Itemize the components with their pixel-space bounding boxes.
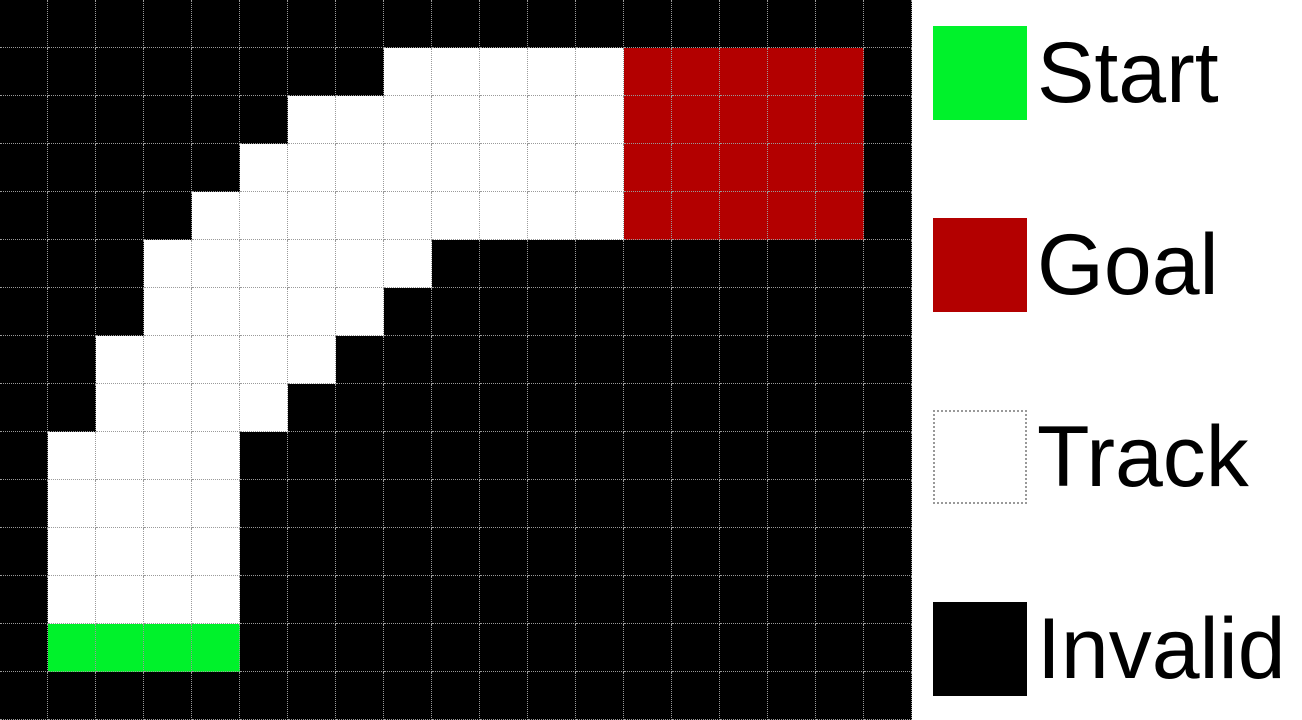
grid-cell-track <box>48 576 96 624</box>
grid-cell-goal <box>816 192 864 240</box>
grid-cell-invalid <box>336 336 384 384</box>
grid-cell-invalid <box>576 480 624 528</box>
grid-cell-invalid <box>768 336 816 384</box>
grid-cell-invalid <box>336 672 384 720</box>
grid-cell-track <box>192 576 240 624</box>
grid-cell-track <box>288 288 336 336</box>
legend-label-invalid: Invalid <box>1037 602 1286 696</box>
grid-cell-invalid <box>576 288 624 336</box>
grid-cell-invalid <box>576 528 624 576</box>
grid-cell-invalid <box>720 528 768 576</box>
grid-cell-invalid <box>336 432 384 480</box>
grid-cell-start <box>144 624 192 672</box>
grid-cell-invalid <box>864 672 912 720</box>
grid-cell-invalid <box>432 480 480 528</box>
grid-cell-invalid <box>576 624 624 672</box>
grid-cell-invalid <box>768 528 816 576</box>
grid-cell-invalid <box>624 0 672 48</box>
legend-item-goal: Goal <box>933 218 1219 312</box>
grid-cell-goal <box>624 96 672 144</box>
legend-item-invalid: Invalid <box>933 602 1286 696</box>
grid-cell-track <box>192 384 240 432</box>
grid-cell-invalid <box>432 432 480 480</box>
grid-cell-invalid <box>432 0 480 48</box>
grid-cell-invalid <box>192 48 240 96</box>
grid-cell-invalid <box>864 432 912 480</box>
grid-cell-track <box>432 48 480 96</box>
grid-cell-goal <box>672 144 720 192</box>
grid-cell-invalid <box>288 432 336 480</box>
grid-cell-invalid <box>624 288 672 336</box>
legend-item-track: Track <box>933 410 1249 504</box>
grid-cell-invalid <box>0 192 48 240</box>
grid-cell-invalid <box>96 48 144 96</box>
grid-cell-invalid <box>192 0 240 48</box>
grid-cell-invalid <box>240 432 288 480</box>
grid-cell-invalid <box>144 48 192 96</box>
grid-cell-track <box>192 240 240 288</box>
grid-cell-invalid <box>144 672 192 720</box>
grid-cell-invalid <box>768 384 816 432</box>
grid-cell-invalid <box>864 192 912 240</box>
grid-cell-invalid <box>0 240 48 288</box>
grid-cell-goal <box>624 48 672 96</box>
grid-cell-invalid <box>528 576 576 624</box>
legend-panel: Start Goal Track Invalid <box>912 0 1302 720</box>
grid-cell-track <box>384 144 432 192</box>
grid-cell-track <box>96 336 144 384</box>
grid-cell-invalid <box>528 432 576 480</box>
grid-cell-invalid <box>384 480 432 528</box>
grid-cell-invalid <box>240 96 288 144</box>
grid-cell-invalid <box>432 624 480 672</box>
grid-cell-invalid <box>144 192 192 240</box>
grid-cell-track <box>528 96 576 144</box>
grid-cell-invalid <box>720 480 768 528</box>
grid-cell-invalid <box>864 384 912 432</box>
grid-cell-track <box>240 336 288 384</box>
grid-cell-invalid <box>288 576 336 624</box>
grid-cell-track <box>192 288 240 336</box>
grid-cell-invalid <box>720 384 768 432</box>
grid-cell-track <box>336 192 384 240</box>
grid-cell-invalid <box>816 624 864 672</box>
grid-cell-invalid <box>0 528 48 576</box>
grid-cell-invalid <box>480 384 528 432</box>
grid-cell-track <box>288 240 336 288</box>
grid-cell-invalid <box>0 0 48 48</box>
grid-cell-invalid <box>624 432 672 480</box>
grid-cell-invalid <box>0 336 48 384</box>
grid-cell-invalid <box>384 288 432 336</box>
grid-cell-track <box>480 48 528 96</box>
grid-cell-track <box>288 336 336 384</box>
grid-cell-track <box>144 480 192 528</box>
grid-cell-track <box>96 480 144 528</box>
grid-cell-goal <box>768 144 816 192</box>
grid-cell-invalid <box>816 240 864 288</box>
grid-cell-invalid <box>864 288 912 336</box>
racetrack-visualization: Start Goal Track Invalid <box>0 0 1302 720</box>
grid-cell-track <box>288 144 336 192</box>
grid-cell-track <box>528 192 576 240</box>
grid-cell-invalid <box>816 672 864 720</box>
grid-cell-invalid <box>384 528 432 576</box>
grid-cell-invalid <box>288 480 336 528</box>
grid-cell-invalid <box>624 384 672 432</box>
grid-cell-invalid <box>240 576 288 624</box>
grid-cell-invalid <box>0 624 48 672</box>
grid-cell-track <box>432 144 480 192</box>
grid-cell-invalid <box>336 576 384 624</box>
legend-item-start: Start <box>933 26 1219 120</box>
grid-cell-goal <box>768 192 816 240</box>
grid-cell-invalid <box>672 624 720 672</box>
grid-cell-invalid <box>576 240 624 288</box>
grid-cell-invalid <box>384 672 432 720</box>
grid-cell-track <box>480 192 528 240</box>
grid-cell-track <box>144 336 192 384</box>
grid-cell-track <box>480 96 528 144</box>
grid-cell-invalid <box>864 624 912 672</box>
grid-cell-invalid <box>432 672 480 720</box>
grid-cell-goal <box>816 48 864 96</box>
legend-label-goal: Goal <box>1037 218 1219 312</box>
grid-cell-track <box>192 432 240 480</box>
grid-cell-invalid <box>240 672 288 720</box>
grid-cell-invalid <box>48 96 96 144</box>
grid-cell-invalid <box>48 144 96 192</box>
grid-cell-invalid <box>96 672 144 720</box>
grid-cell-invalid <box>288 624 336 672</box>
grid-cell-invalid <box>480 528 528 576</box>
grid-cell-invalid <box>720 576 768 624</box>
grid-cell-goal <box>816 144 864 192</box>
grid-cell-invalid <box>576 576 624 624</box>
grid-cell-invalid <box>96 288 144 336</box>
grid-cell-invalid <box>288 384 336 432</box>
grid-cell-invalid <box>48 384 96 432</box>
grid-cell-track <box>96 432 144 480</box>
grid-cell-invalid <box>240 528 288 576</box>
grid-cell-invalid <box>576 672 624 720</box>
grid-cell-invalid <box>720 624 768 672</box>
grid-cell-invalid <box>864 48 912 96</box>
grid-cell-invalid <box>144 96 192 144</box>
grid-cell-invalid <box>816 528 864 576</box>
grid-cell-invalid <box>720 240 768 288</box>
start-swatch <box>933 26 1027 120</box>
grid-cell-invalid <box>480 240 528 288</box>
grid-cell-track <box>48 432 96 480</box>
grid-cell-track <box>240 384 288 432</box>
grid-cell-track <box>480 144 528 192</box>
grid-cell-goal <box>720 48 768 96</box>
grid-cell-invalid <box>48 240 96 288</box>
grid-cell-invalid <box>816 336 864 384</box>
grid-cell-invalid <box>864 576 912 624</box>
grid-cell-track <box>576 144 624 192</box>
grid-cell-invalid <box>720 0 768 48</box>
grid-cell-invalid <box>0 384 48 432</box>
grid-cell-track <box>96 384 144 432</box>
grid-cell-invalid <box>864 528 912 576</box>
grid-cell-invalid <box>336 0 384 48</box>
grid-cell-invalid <box>864 240 912 288</box>
grid-cell-invalid <box>0 432 48 480</box>
grid-cell-invalid <box>480 480 528 528</box>
grid-cell-invalid <box>432 528 480 576</box>
grid-cell-invalid <box>624 624 672 672</box>
grid-cell-invalid <box>192 672 240 720</box>
grid-cell-invalid <box>96 0 144 48</box>
grid-cell-goal <box>720 192 768 240</box>
grid-cell-track <box>336 288 384 336</box>
grid-cell-invalid <box>672 336 720 384</box>
grid-cell-track <box>192 480 240 528</box>
grid-cell-invalid <box>864 480 912 528</box>
grid-cell-goal <box>816 96 864 144</box>
goal-swatch <box>933 218 1027 312</box>
grid-cell-invalid <box>528 480 576 528</box>
grid-cell-invalid <box>48 672 96 720</box>
grid-cell-invalid <box>624 240 672 288</box>
grid-cell-invalid <box>384 624 432 672</box>
grid-cell-track <box>144 432 192 480</box>
grid-cell-track <box>336 144 384 192</box>
grid-cell-invalid <box>624 672 672 720</box>
grid-cell-invalid <box>0 48 48 96</box>
grid-cell-track <box>432 192 480 240</box>
grid-cell-invalid <box>768 432 816 480</box>
grid-cell-invalid <box>432 384 480 432</box>
grid-cell-invalid <box>672 432 720 480</box>
grid-cell-track <box>96 528 144 576</box>
grid-cell-invalid <box>0 288 48 336</box>
grid-cell-track <box>336 240 384 288</box>
grid-cell-invalid <box>480 576 528 624</box>
grid-cell-invalid <box>336 384 384 432</box>
grid-cell-invalid <box>432 336 480 384</box>
grid-cell-invalid <box>768 672 816 720</box>
grid-cell-invalid <box>816 480 864 528</box>
grid-cell-invalid <box>336 480 384 528</box>
grid-cell-track <box>48 480 96 528</box>
grid-cell-invalid <box>0 144 48 192</box>
grid-cell-track <box>528 48 576 96</box>
grid-cell-track <box>240 240 288 288</box>
grid-cell-invalid <box>576 0 624 48</box>
grid-cell-invalid <box>768 0 816 48</box>
grid-cell-invalid <box>0 480 48 528</box>
grid-cell-track <box>192 336 240 384</box>
grid-cell-invalid <box>576 336 624 384</box>
grid-cell-track <box>192 528 240 576</box>
grid-cell-invalid <box>48 288 96 336</box>
grid-cell-invalid <box>336 48 384 96</box>
grid-cell-invalid <box>528 624 576 672</box>
grid-cell-track <box>288 192 336 240</box>
grid-cell-invalid <box>528 240 576 288</box>
grid-cell-track <box>240 288 288 336</box>
grid-cell-invalid <box>144 144 192 192</box>
grid-cell-invalid <box>288 48 336 96</box>
grid-cell-invalid <box>816 288 864 336</box>
grid-cell-track <box>144 576 192 624</box>
grid-cell-invalid <box>336 624 384 672</box>
grid-cell-invalid <box>480 624 528 672</box>
grid-cell-invalid <box>672 480 720 528</box>
grid-cell-invalid <box>192 96 240 144</box>
grid-cell-invalid <box>480 336 528 384</box>
grid-cell-goal <box>720 144 768 192</box>
grid-cell-invalid <box>816 576 864 624</box>
grid-cell-invalid <box>384 432 432 480</box>
grid-cell-goal <box>720 96 768 144</box>
grid-cell-invalid <box>624 576 672 624</box>
grid-cell-invalid <box>480 288 528 336</box>
grid-cell-invalid <box>480 432 528 480</box>
grid-cell-invalid <box>384 336 432 384</box>
grid-cell-goal <box>672 96 720 144</box>
grid-cell-invalid <box>384 0 432 48</box>
grid-cell-invalid <box>768 624 816 672</box>
grid-cell-track <box>528 144 576 192</box>
grid-cell-invalid <box>96 240 144 288</box>
track-swatch <box>933 410 1027 504</box>
grid-cell-goal <box>768 96 816 144</box>
grid-cell-start <box>48 624 96 672</box>
grid-cell-invalid <box>48 192 96 240</box>
grid-cell-invalid <box>96 192 144 240</box>
grid-cell-invalid <box>672 672 720 720</box>
grid-cell-track <box>576 192 624 240</box>
grid-cell-track <box>192 192 240 240</box>
racetrack-grid <box>0 0 912 720</box>
grid-cell-goal <box>672 48 720 96</box>
grid-cell-invalid <box>480 0 528 48</box>
grid-cell-invalid <box>432 576 480 624</box>
grid-cell-invalid <box>528 672 576 720</box>
grid-cell-track <box>576 48 624 96</box>
grid-cell-invalid <box>336 528 384 576</box>
grid-cell-invalid <box>48 0 96 48</box>
grid-cell-invalid <box>0 96 48 144</box>
grid-cell-invalid <box>864 96 912 144</box>
grid-cell-invalid <box>768 288 816 336</box>
grid-cell-invalid <box>240 480 288 528</box>
grid-cell-invalid <box>192 144 240 192</box>
invalid-swatch <box>933 602 1027 696</box>
grid-cell-goal <box>624 144 672 192</box>
grid-cell-track <box>576 96 624 144</box>
grid-cell-invalid <box>96 144 144 192</box>
grid-cell-invalid <box>624 528 672 576</box>
legend-label-start: Start <box>1037 26 1219 120</box>
grid-cell-track <box>96 576 144 624</box>
grid-cell-goal <box>624 192 672 240</box>
grid-cell-invalid <box>864 144 912 192</box>
grid-cell-track <box>48 528 96 576</box>
grid-cell-invalid <box>672 0 720 48</box>
grid-cell-goal <box>672 192 720 240</box>
grid-cell-invalid <box>384 576 432 624</box>
grid-cell-invalid <box>672 240 720 288</box>
grid-cell-invalid <box>624 480 672 528</box>
grid-cell-goal <box>768 48 816 96</box>
grid-cell-invalid <box>672 528 720 576</box>
grid-cell-invalid <box>528 288 576 336</box>
grid-cell-invalid <box>720 432 768 480</box>
grid-cell-invalid <box>240 48 288 96</box>
grid-cell-track <box>384 192 432 240</box>
grid-cell-invalid <box>864 336 912 384</box>
grid-cell-invalid <box>432 240 480 288</box>
grid-cell-track <box>144 528 192 576</box>
grid-cell-track <box>432 96 480 144</box>
grid-cell-invalid <box>288 0 336 48</box>
grid-cell-track <box>384 96 432 144</box>
grid-cell-invalid <box>768 240 816 288</box>
grid-cell-invalid <box>48 336 96 384</box>
grid-cell-invalid <box>48 48 96 96</box>
grid-cell-invalid <box>768 576 816 624</box>
grid-cell-invalid <box>528 384 576 432</box>
grid-cell-invalid <box>864 0 912 48</box>
grid-cell-track <box>240 192 288 240</box>
grid-cell-track <box>336 96 384 144</box>
grid-cell-invalid <box>768 480 816 528</box>
grid-cell-track <box>384 240 432 288</box>
grid-cell-track <box>288 96 336 144</box>
grid-cell-invalid <box>816 0 864 48</box>
grid-cell-invalid <box>528 528 576 576</box>
grid-cell-invalid <box>528 336 576 384</box>
grid-cell-invalid <box>720 336 768 384</box>
grid-cell-invalid <box>528 0 576 48</box>
grid-cell-invalid <box>816 432 864 480</box>
grid-cell-invalid <box>288 672 336 720</box>
grid-cell-invalid <box>384 384 432 432</box>
grid-cell-invalid <box>96 96 144 144</box>
grid-cell-track <box>144 240 192 288</box>
grid-cell-invalid <box>144 0 192 48</box>
grid-cell-invalid <box>672 288 720 336</box>
grid-cell-invalid <box>480 672 528 720</box>
grid-cell-invalid <box>240 624 288 672</box>
grid-cell-invalid <box>672 576 720 624</box>
grid-cell-invalid <box>816 384 864 432</box>
grid-cell-invalid <box>672 384 720 432</box>
grid-cell-start <box>192 624 240 672</box>
grid-cell-invalid <box>720 288 768 336</box>
grid-cell-invalid <box>576 432 624 480</box>
grid-cell-track <box>144 384 192 432</box>
grid-cell-track <box>144 288 192 336</box>
legend-label-track: Track <box>1037 410 1249 504</box>
grid-cell-invalid <box>240 0 288 48</box>
grid-cell-track <box>240 144 288 192</box>
grid-cell-invalid <box>432 288 480 336</box>
grid-cell-track <box>384 48 432 96</box>
grid-cell-invalid <box>624 336 672 384</box>
grid-cell-invalid <box>288 528 336 576</box>
grid-cell-invalid <box>0 576 48 624</box>
grid-cell-invalid <box>576 384 624 432</box>
grid-cell-invalid <box>0 672 48 720</box>
grid-cell-start <box>96 624 144 672</box>
grid-cell-invalid <box>720 672 768 720</box>
